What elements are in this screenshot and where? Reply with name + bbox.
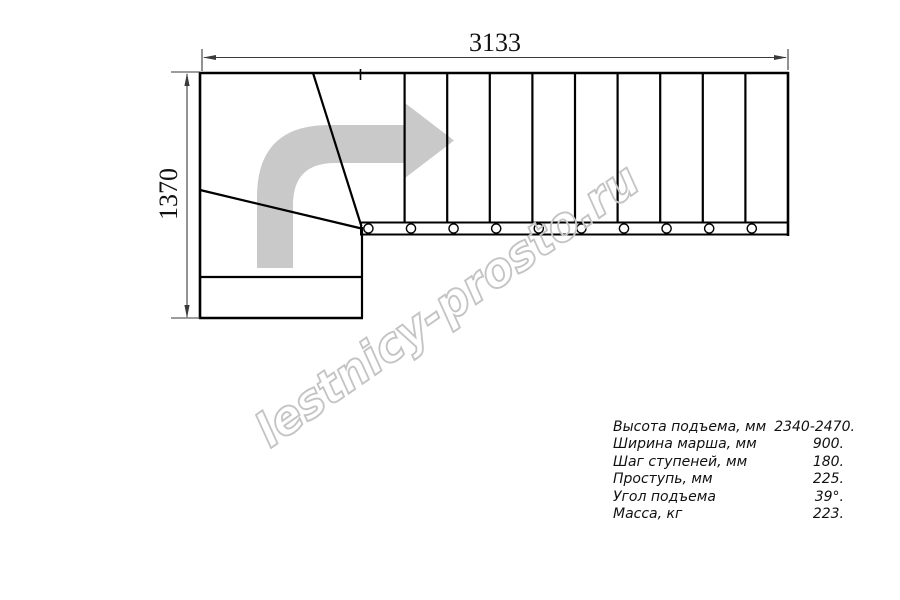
spec-row: Ширина марша, мм900. xyxy=(613,436,844,453)
spec-row: Шаг ступеней, мм180. xyxy=(613,454,844,471)
spec-value: 223. xyxy=(813,506,844,523)
spec-value: 225. xyxy=(813,471,844,488)
spec-label: Проступь, мм xyxy=(613,471,713,488)
baluster-circle xyxy=(619,224,628,233)
dimension-width: 3133 xyxy=(202,28,788,71)
spec-value: 180. xyxy=(813,454,844,471)
spec-value: 900. xyxy=(813,436,844,453)
spec-row: Масса, кг223. xyxy=(613,506,844,523)
dimension-width-label: 3133 xyxy=(469,28,521,57)
baluster-circle xyxy=(662,224,671,233)
spec-label: Угол подъема xyxy=(613,489,716,506)
spec-label: Масса, кг xyxy=(613,506,682,523)
baluster-circle xyxy=(449,224,458,233)
baluster-circle xyxy=(492,224,501,233)
baluster-circle xyxy=(747,224,756,233)
spec-label: Шаг ступеней, мм xyxy=(613,454,747,471)
spec-label: Ширина марша, мм xyxy=(613,436,757,453)
dimension-height-label: 1370 xyxy=(154,168,183,220)
baluster-circle xyxy=(406,224,415,233)
spec-row: Высота подъема, мм2340-2470. xyxy=(613,419,844,436)
drawing-canvas: 3133 1370 lestnicy-prosto.ru Высота подъ… xyxy=(0,0,900,600)
dimension-height: 1370 xyxy=(154,72,200,318)
spec-value: 39°. xyxy=(815,489,844,506)
spec-value: 2340-2470. xyxy=(774,419,855,436)
spec-table: Высота подъема, мм2340-2470.Ширина марша… xyxy=(613,419,844,523)
spec-row: Угол подъема39°. xyxy=(613,489,844,506)
spec-row: Проступь, мм225. xyxy=(613,471,844,488)
direction-arrow-icon xyxy=(257,103,454,268)
baluster-circle xyxy=(705,224,714,233)
baluster-circle xyxy=(364,224,373,233)
spec-label: Высота подъема, мм xyxy=(613,419,766,436)
